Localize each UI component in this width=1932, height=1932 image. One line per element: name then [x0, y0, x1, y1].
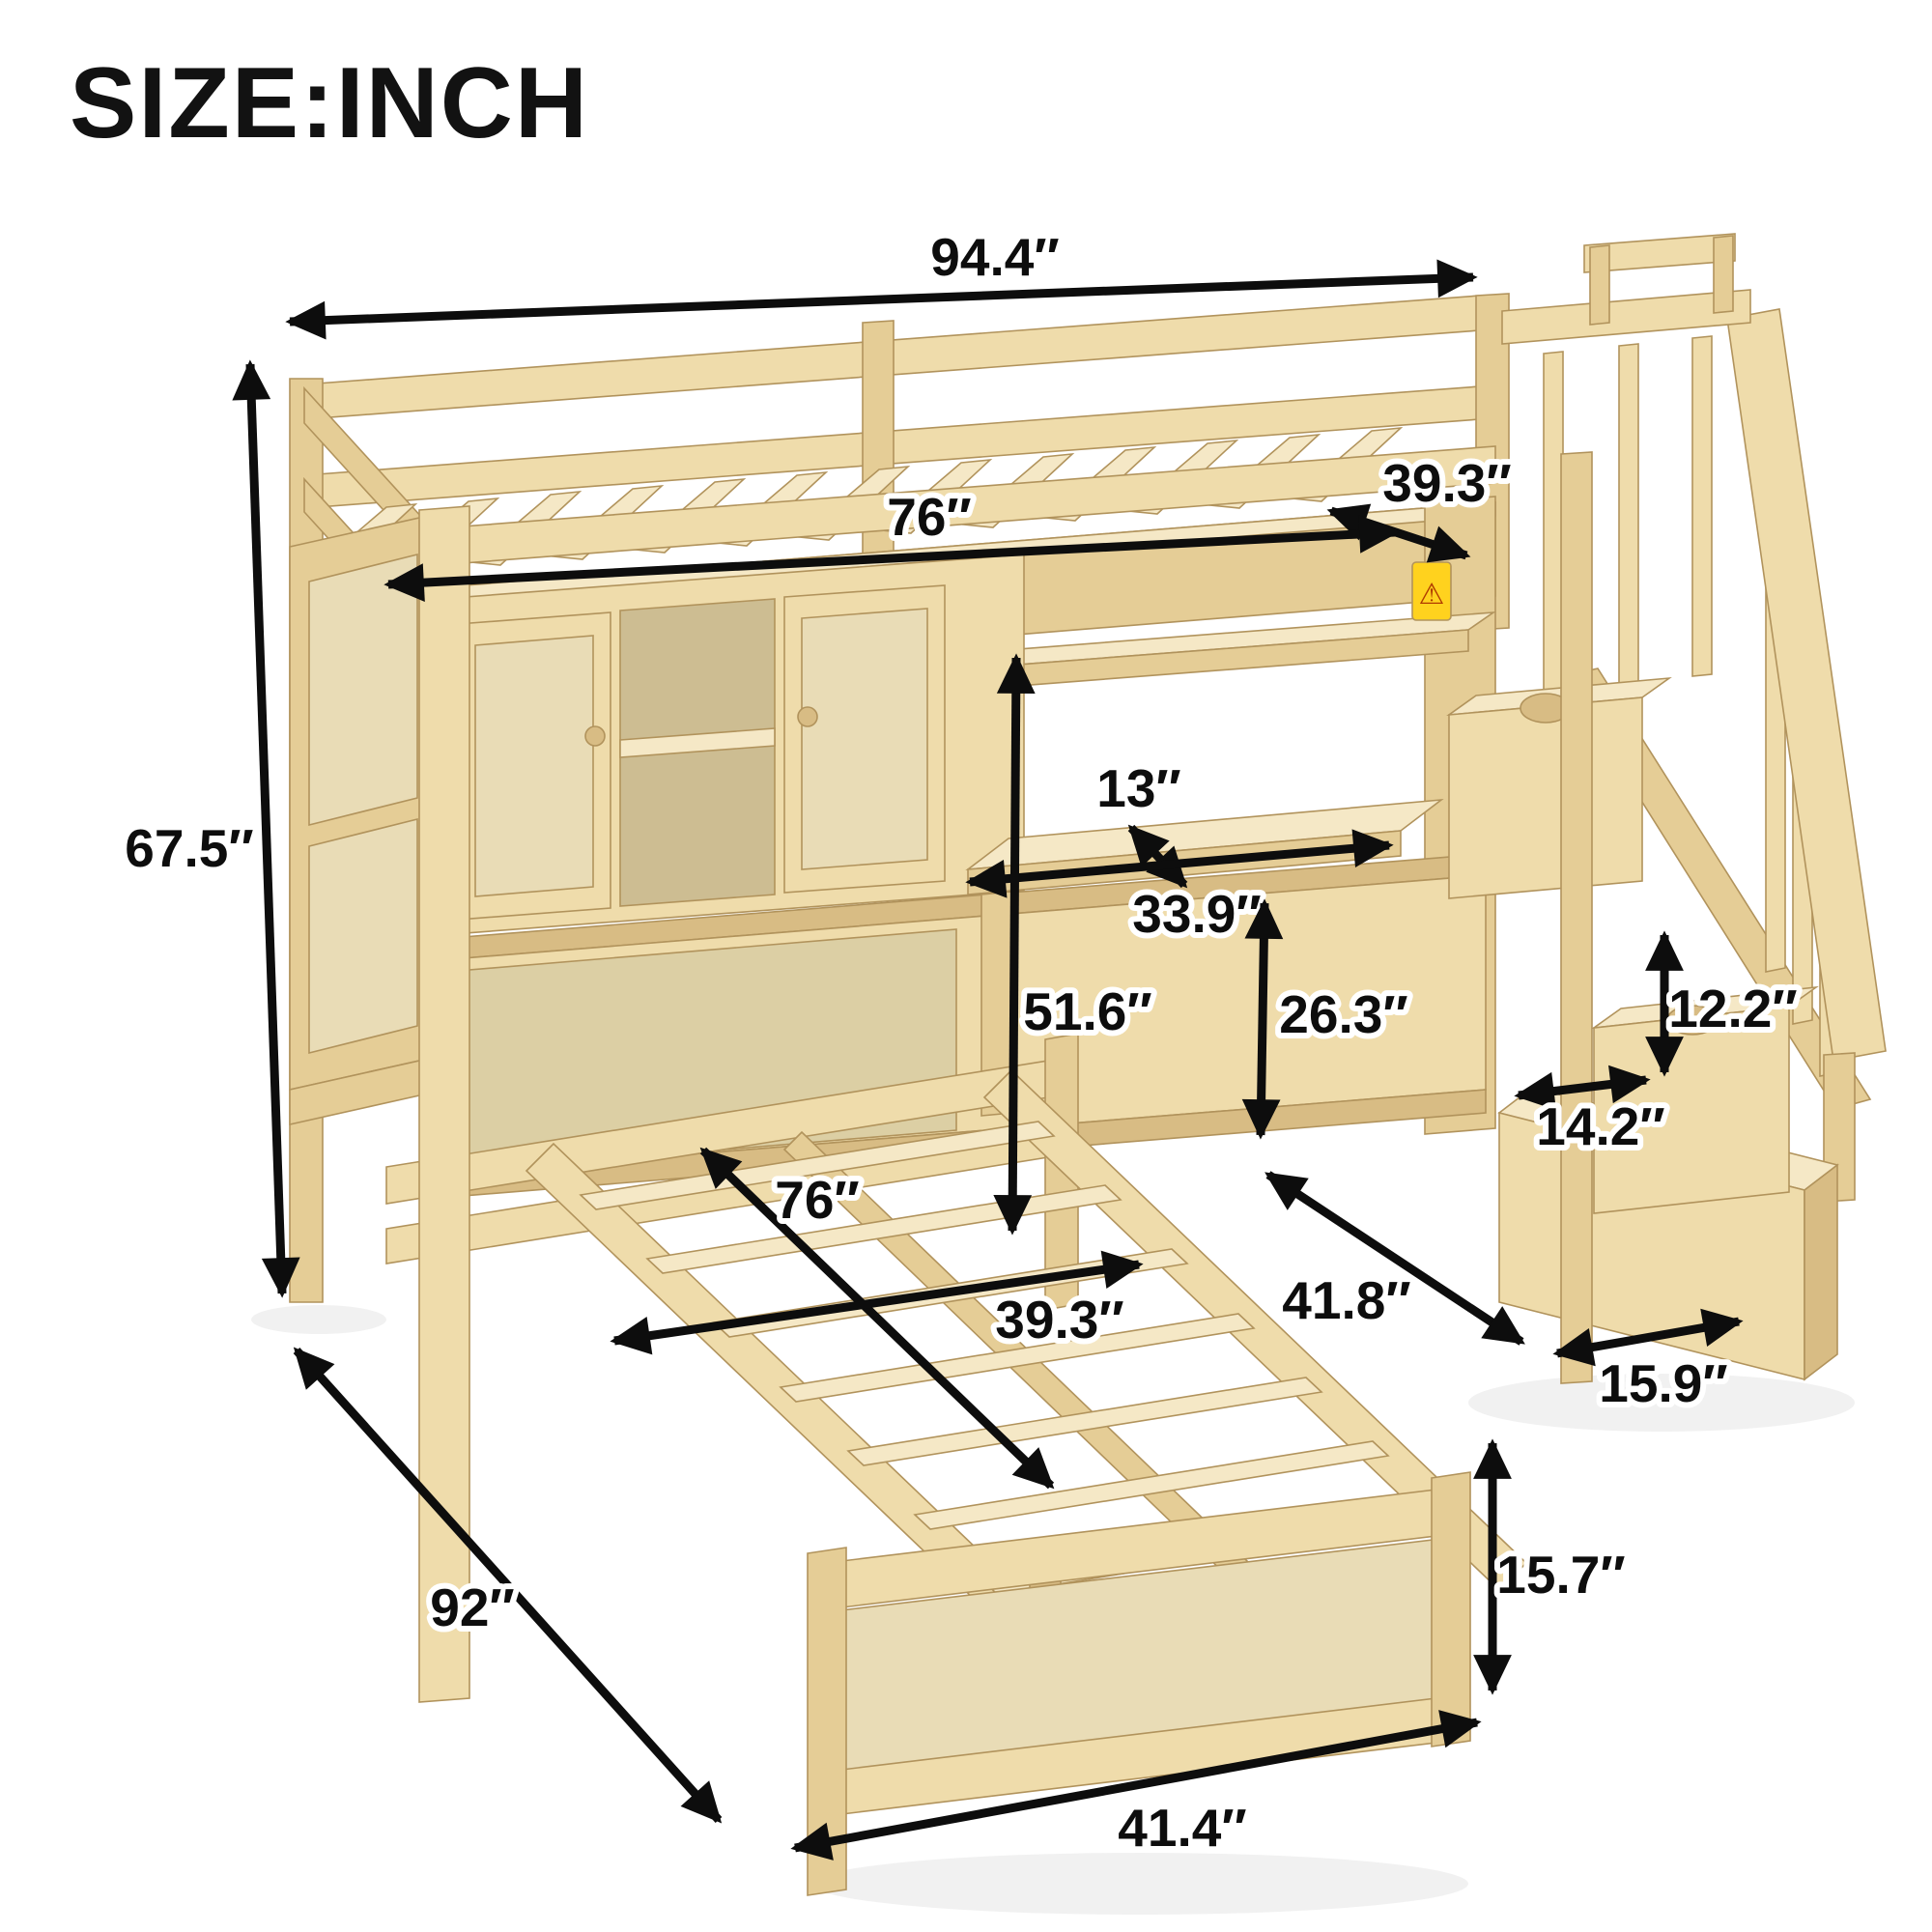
dim-stair-depth-overall: 41.8″	[1268, 1175, 1521, 1342]
dim-overall-depth: 92″	[297, 1350, 719, 1820]
dim-label: 13″	[1096, 758, 1181, 818]
dim-label: 41.8″	[1282, 1270, 1410, 1330]
door-panel	[475, 636, 593, 896]
dim-platform-bed-height: 15.7″	[1492, 1443, 1626, 1690]
dim-label: 51.6″	[1023, 981, 1151, 1041]
baluster	[1544, 352, 1563, 699]
door-panel	[802, 609, 927, 869]
dim-label: 94.4″	[930, 227, 1059, 287]
baluster	[1619, 344, 1638, 684]
warning-glyph: ⚠	[1419, 578, 1445, 611]
dim-label: 15.7″	[1496, 1545, 1625, 1605]
shadow	[811, 1853, 1468, 1915]
door-knob	[798, 707, 817, 726]
dim-label: 76″	[887, 487, 972, 547]
dim-label: 92″	[430, 1577, 515, 1637]
stair-post	[1561, 452, 1592, 1383]
loft-bed-illustration: ⚠	[290, 234, 1886, 1895]
dim-loft-length-overall: 94.4″	[290, 227, 1473, 322]
dim-label: 15.9″	[1599, 1353, 1727, 1413]
rail-post	[1590, 245, 1609, 325]
dim-label: 39.3″	[1382, 453, 1511, 513]
page-title: SIZE:INCH	[70, 47, 589, 159]
dim-overall-height: 67.5″	[125, 364, 282, 1293]
stair-base-side	[1804, 1165, 1837, 1379]
dim-label: 12.2″	[1668, 979, 1797, 1038]
warning-sticker: ⚠	[1412, 562, 1451, 620]
dim-label: 67.5″	[125, 818, 253, 878]
shadow	[251, 1305, 386, 1334]
side-panel	[309, 819, 417, 1053]
footboard-post	[1432, 1472, 1470, 1747]
dim-arrow	[1012, 658, 1016, 1231]
dim-label: 26.3″	[1279, 984, 1407, 1044]
front-left-post	[419, 506, 469, 1702]
dim-label: 39.3″	[995, 1290, 1123, 1350]
size-diagram-canvas: SIZE:INCH	[0, 0, 1932, 1932]
dim-label: 14.2″	[1536, 1096, 1664, 1156]
door-knob	[585, 726, 605, 746]
side-panel	[309, 554, 417, 825]
platform-bed	[386, 1034, 1526, 1895]
dim-arrow	[250, 364, 282, 1293]
baluster	[1692, 336, 1712, 676]
dim-label: 33.9″	[1132, 884, 1261, 944]
stair-drawer	[1449, 697, 1642, 898]
dim-arrow	[1261, 903, 1264, 1135]
slat	[848, 1378, 1321, 1465]
dim-label: 41.4″	[1118, 1798, 1246, 1858]
dim-label: 76″	[775, 1170, 860, 1230]
rail-post	[1714, 236, 1733, 313]
